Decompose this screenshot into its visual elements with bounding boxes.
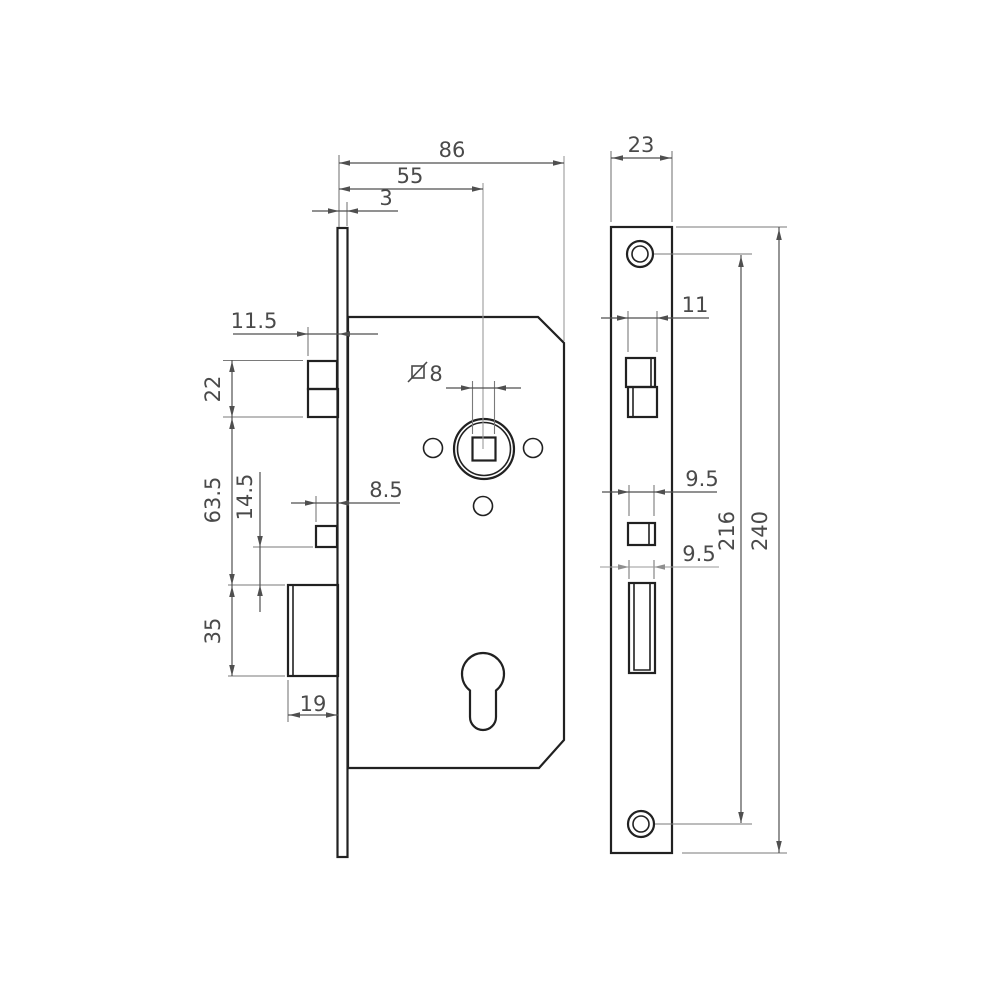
faceplate-outline (611, 227, 672, 853)
latch-bolt-lower (308, 389, 338, 417)
dim-latch-height: 22 (201, 376, 225, 403)
spindle-hub-outer (454, 419, 514, 479)
dimensions-side-view: 86 55 3 11.5 22 63.5 14.5 35 8.5 (201, 138, 564, 722)
square-section-symbol (408, 362, 427, 382)
technical-drawing-page: 86 55 3 11.5 22 63.5 14.5 35 8.5 (0, 0, 1000, 1000)
dim-deadbolt-height: 35 (201, 618, 225, 645)
lock-body-outline (348, 317, 564, 768)
deadbolt-slot-inner (634, 584, 650, 670)
auxiliary-bolt (316, 526, 337, 547)
fixing-hole-right (524, 439, 543, 458)
dim-latch-cutout-width: 11 (682, 293, 709, 317)
faceplate-front-view (611, 227, 672, 853)
screw-hole-bottom-outer (628, 811, 654, 837)
dim-plate-width: 23 (628, 133, 655, 157)
dim-follower-offset: 14.5 (233, 474, 257, 521)
latch-bolt-upper (308, 361, 337, 389)
screw-hole-top-inner (632, 246, 648, 262)
fixing-hole-left (424, 439, 443, 458)
euro-cylinder-cutout (462, 653, 504, 730)
dim-plate-length: 240 (748, 511, 772, 551)
dim-latch-to-deadbolt: 63.5 (201, 477, 225, 524)
dim-deadbolt-cutout-width: 9.5 (682, 542, 715, 566)
dim-case-width: 86 (439, 138, 466, 162)
mortise-lock-drawing: 86 55 3 11.5 22 63.5 14.5 35 8.5 (0, 0, 1000, 1000)
deadbolt-slot (629, 583, 655, 673)
dim-latch-protrusion: 11.5 (231, 309, 278, 333)
dim-faceplate-thickness: 3 (379, 186, 392, 210)
dim-follower-cutout-width: 9.5 (685, 467, 718, 491)
deadbolt (288, 585, 338, 676)
spindle-square-hole (473, 438, 496, 461)
faceplate-side-profile (338, 228, 348, 857)
dim-deadbolt-protrusion: 19 (300, 692, 327, 716)
fixing-hole-bottom (474, 497, 493, 516)
lock-case-side-view (288, 228, 564, 857)
screw-hole-bottom-inner (633, 816, 649, 832)
dim-backset: 55 (397, 164, 424, 188)
dimensions-faceplate-view: 23 11 9.5 9.5 216 240 (600, 133, 787, 853)
screw-hole-top-outer (627, 241, 653, 267)
dim-spindle-square: 8 (429, 362, 442, 386)
dim-screw-hole-spacing: 216 (715, 511, 739, 551)
spindle-hub-inner (458, 423, 511, 476)
dim-follower-width: 8.5 (369, 478, 402, 502)
follower-cutout (628, 523, 655, 545)
